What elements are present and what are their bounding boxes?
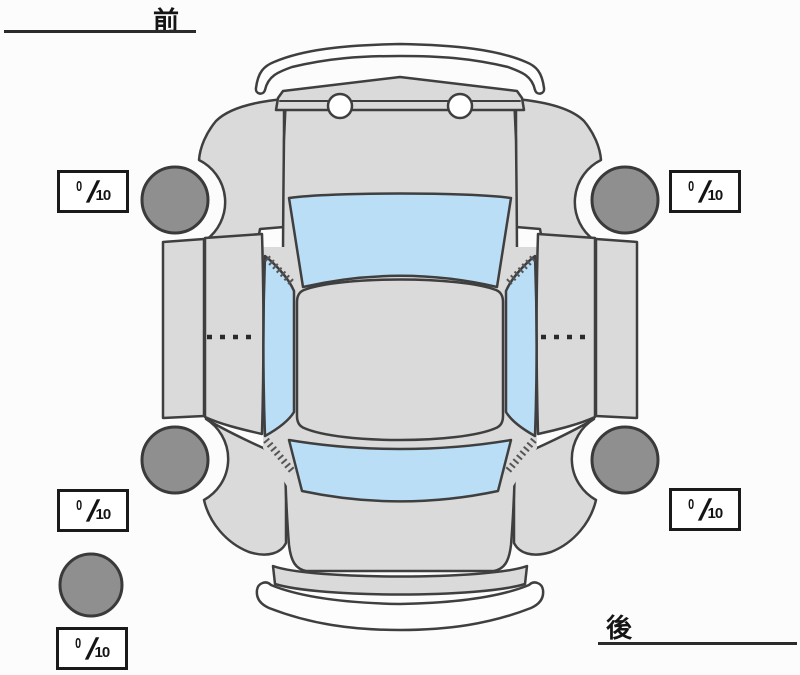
tire-front-left xyxy=(142,167,208,233)
tread-box-front-left: 0 / 10 xyxy=(57,170,129,213)
tread-box-rear-right: 0 / 10 xyxy=(669,488,741,531)
tread-denominator: 10 xyxy=(708,187,723,204)
fender-front-left xyxy=(199,99,284,254)
tread-denominator: 10 xyxy=(96,187,111,204)
tread-value: 0 xyxy=(688,178,694,195)
hood-vent-left xyxy=(328,94,352,118)
rear-orientation-underline xyxy=(598,642,797,645)
rear-window xyxy=(289,440,511,502)
tire-front-right xyxy=(592,167,658,233)
rear-orientation-label: 後 xyxy=(606,608,632,645)
tire-rear-left xyxy=(142,427,208,493)
front-orientation-underline xyxy=(4,30,196,33)
tread-value: 0 xyxy=(688,496,694,513)
tread-denominator: 10 xyxy=(96,506,111,523)
hood-vent-right xyxy=(448,94,472,118)
door-right xyxy=(537,234,596,434)
roof xyxy=(297,280,503,441)
vehicle-inspection-diagram: 前 後 0 / 10 0 / 10 0 / 10 0 / 10 0 / 10 xyxy=(0,0,800,675)
fender-front-right xyxy=(516,99,601,254)
spare-tire xyxy=(60,554,122,616)
door-left xyxy=(205,234,264,434)
car-top-view xyxy=(0,0,800,675)
front-cowl xyxy=(276,77,524,110)
tread-denominator: 10 xyxy=(708,505,723,522)
tire-rear-right xyxy=(592,427,658,493)
sill-right xyxy=(596,239,637,418)
tread-box-spare: 0 / 10 xyxy=(56,627,128,670)
tread-value: 0 xyxy=(76,497,82,514)
sill-left xyxy=(163,239,204,418)
tread-value: 0 xyxy=(76,178,82,195)
tread-box-front-right: 0 / 10 xyxy=(669,170,741,213)
tread-denominator: 10 xyxy=(95,644,110,661)
windshield xyxy=(289,194,511,288)
tread-box-rear-left: 0 / 10 xyxy=(57,489,129,532)
tread-value: 0 xyxy=(75,635,81,652)
